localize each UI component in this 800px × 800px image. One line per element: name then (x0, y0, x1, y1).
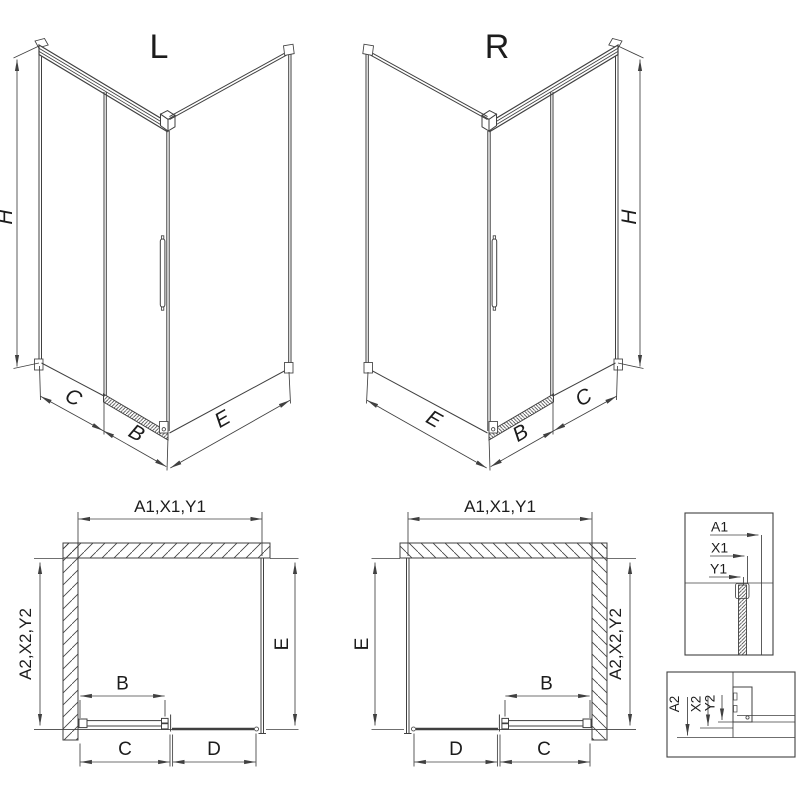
detail-label-y2: Y2 (703, 695, 718, 712)
plan-view-right: A1,X1,Y1 A2,X2,Y2 E B D C (352, 497, 636, 767)
dim-label-b-r: B (509, 420, 533, 447)
dim-label-c-l: C (61, 384, 86, 412)
plan-r-dim-depth: A2,X2,Y2 (606, 608, 625, 680)
dim-label-b-l: B (125, 420, 149, 447)
dim-label-e-l: E (211, 405, 235, 432)
plan-view-left: A1,X1,Y1 A2,X2,Y2 E B C D (16, 497, 299, 767)
view-l-title: L (150, 28, 169, 66)
plan-r-dim-top: A1,X1,Y1 (464, 497, 536, 516)
plan-r-dim-d: D (449, 739, 463, 760)
perspective-view-left: L H C B E (0, 28, 294, 471)
plan-r-dim-e: E (352, 638, 373, 651)
plan-r-dim-c: C (537, 739, 551, 760)
dim-label-e-r: E (422, 406, 446, 433)
plan-l-dim-d: D (207, 739, 221, 760)
plan-l-dim-c: C (118, 739, 132, 760)
detail-label-a1: A1 (711, 519, 728, 535)
dim-label-height-l: H (0, 209, 17, 225)
perspective-view-right: R H E B C (363, 28, 644, 471)
dim-label-height-r: H (618, 209, 641, 225)
view-r-title: R (485, 28, 510, 66)
detail-panel-bottom: A2 X2 Y2 (667, 672, 795, 757)
plan-l-dim-depth: A2,X2,Y2 (16, 608, 35, 680)
detail-label-x1: X1 (711, 540, 728, 556)
plan-l-dim-top: A1,X1,Y1 (134, 497, 206, 516)
technical-drawing-sheet: L H C B E R H E B C A1,X1,Y1 A2,X2,Y2 E … (0, 0, 800, 800)
plan-r-dim-b: B (540, 674, 553, 695)
detail-label-y1: Y1 (710, 561, 727, 577)
plan-l-dim-e: E (272, 638, 293, 651)
shower-enclosure-drawing: L H C B E R H E B C A1,X1,Y1 A2,X2,Y2 E … (0, 0, 800, 800)
plan-l-dim-b: B (116, 674, 129, 695)
detail-label-a2: A2 (667, 696, 682, 713)
dim-label-c-r: C (572, 384, 597, 412)
detail-panel-top: A1 X1 Y1 (685, 513, 773, 655)
detail-label-x2: X2 (689, 696, 704, 713)
